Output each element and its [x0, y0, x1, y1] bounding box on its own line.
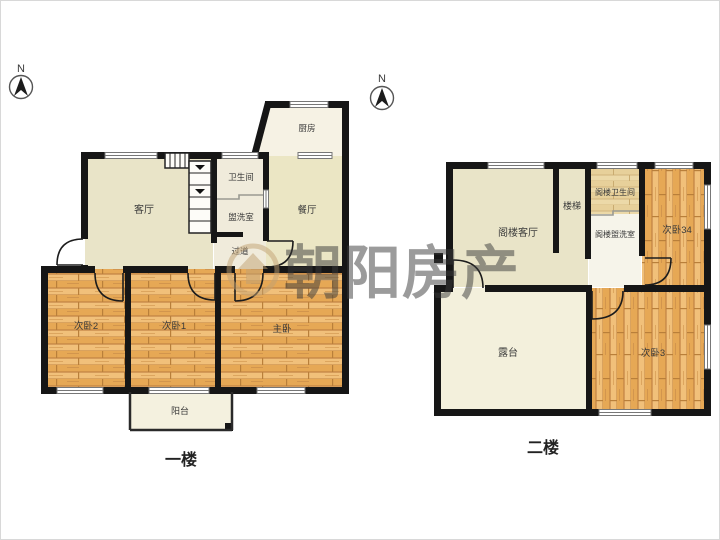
window	[298, 153, 332, 159]
room-attic-wash	[589, 214, 641, 287]
window	[655, 163, 693, 169]
label-wash: 盥洗室	[228, 212, 254, 222]
room-stair-corridor	[556, 166, 588, 287]
window	[599, 410, 651, 416]
window	[705, 185, 711, 229]
door-living-entry	[57, 239, 83, 265]
label-attic-wash: 阁楼盥洗室	[595, 229, 635, 239]
label-living: 客厅	[134, 203, 154, 216]
label-master: 主卧	[272, 323, 292, 335]
compass-n-label: N	[17, 63, 25, 75]
window	[57, 388, 103, 394]
label-balcony: 阳台	[171, 405, 189, 416]
compass-n-label: N	[378, 73, 386, 85]
window	[290, 102, 328, 108]
label-bedroom1: 次卧1	[162, 320, 186, 332]
compass-floor1: N	[10, 63, 33, 99]
window	[149, 388, 209, 394]
label-attic-living: 阁楼客厅	[498, 226, 538, 239]
label-bedroom2: 次卧2	[74, 320, 98, 332]
window	[705, 325, 711, 369]
label-bedroom3: 次卧3	[641, 347, 665, 359]
label-bath: 卫生间	[228, 172, 254, 182]
north-arrow-icon	[14, 77, 28, 96]
floor1-title: 一楼	[165, 450, 197, 469]
label-bedroom34: 次卧34	[662, 224, 692, 236]
label-stairs: 楼梯	[563, 200, 581, 211]
window	[222, 153, 258, 159]
window	[257, 388, 305, 394]
window	[597, 163, 637, 169]
floor2-title: 二楼	[527, 438, 559, 457]
window	[105, 153, 157, 159]
compass-floor2: N	[371, 73, 394, 110]
floorplan-image: 客厅 卫生间 盥洗室 过道 厨房 餐厅 次卧2 次卧1 主卧 阳台 一楼 N	[0, 0, 720, 540]
label-kitchen: 厨房	[298, 123, 315, 133]
watermark-text: 朝阳房产	[284, 241, 520, 306]
label-attic-bath: 阁楼卫生间	[595, 187, 635, 197]
label-dining: 餐厅	[297, 204, 317, 216]
label-terrace: 露台	[498, 346, 518, 359]
floorplan-svg: 客厅 卫生间 盥洗室 过道 厨房 餐厅 次卧2 次卧1 主卧 阳台 一楼 N	[1, 1, 720, 540]
window	[488, 163, 544, 169]
north-arrow-icon	[375, 88, 389, 107]
window	[264, 190, 269, 208]
